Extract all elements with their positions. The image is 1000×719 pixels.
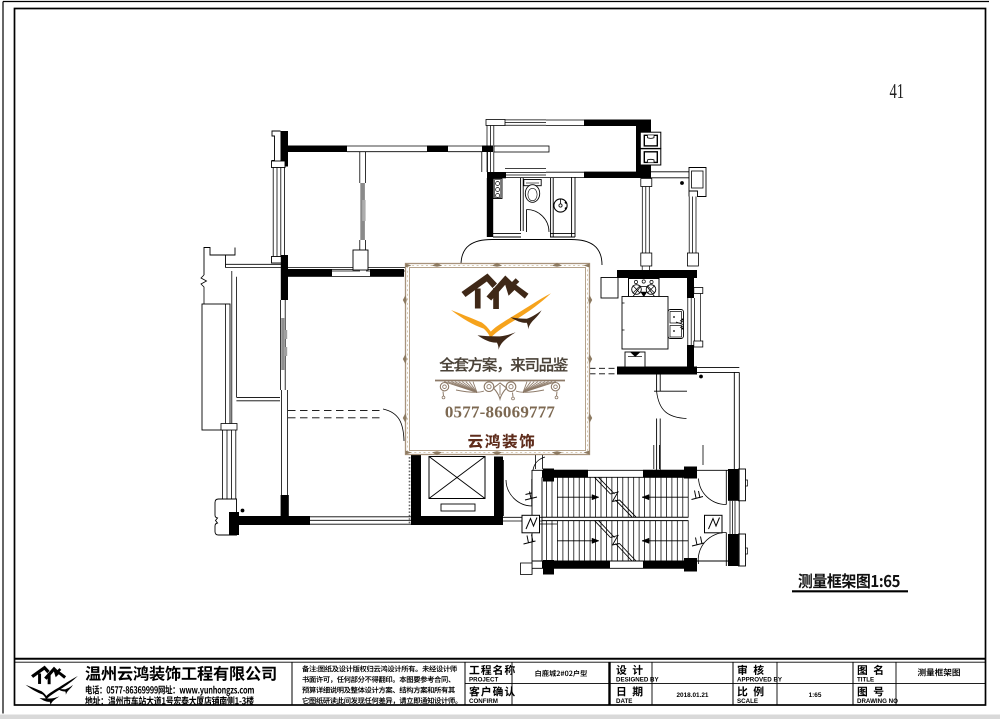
svg-text:PROJECT: PROJECT <box>469 677 498 684</box>
svg-text:APPROVED BY: APPROVED BY <box>737 677 783 684</box>
svg-text:41: 41 <box>890 79 905 102</box>
svg-text:DATE: DATE <box>616 698 632 705</box>
svg-text:DRAWING NO: DRAWING NO <box>857 698 898 705</box>
svg-text:0577-86069777: 0577-86069777 <box>445 403 556 422</box>
svg-text:CONFIRM: CONFIRM <box>469 698 498 705</box>
svg-text:DESIGNED BY: DESIGNED BY <box>616 677 660 684</box>
svg-text:SCALE: SCALE <box>737 698 758 705</box>
svg-text:2018.01.21: 2018.01.21 <box>677 692 709 699</box>
svg-text:TITLE: TITLE <box>857 677 874 684</box>
svg-text:1:65: 1:65 <box>809 692 822 699</box>
